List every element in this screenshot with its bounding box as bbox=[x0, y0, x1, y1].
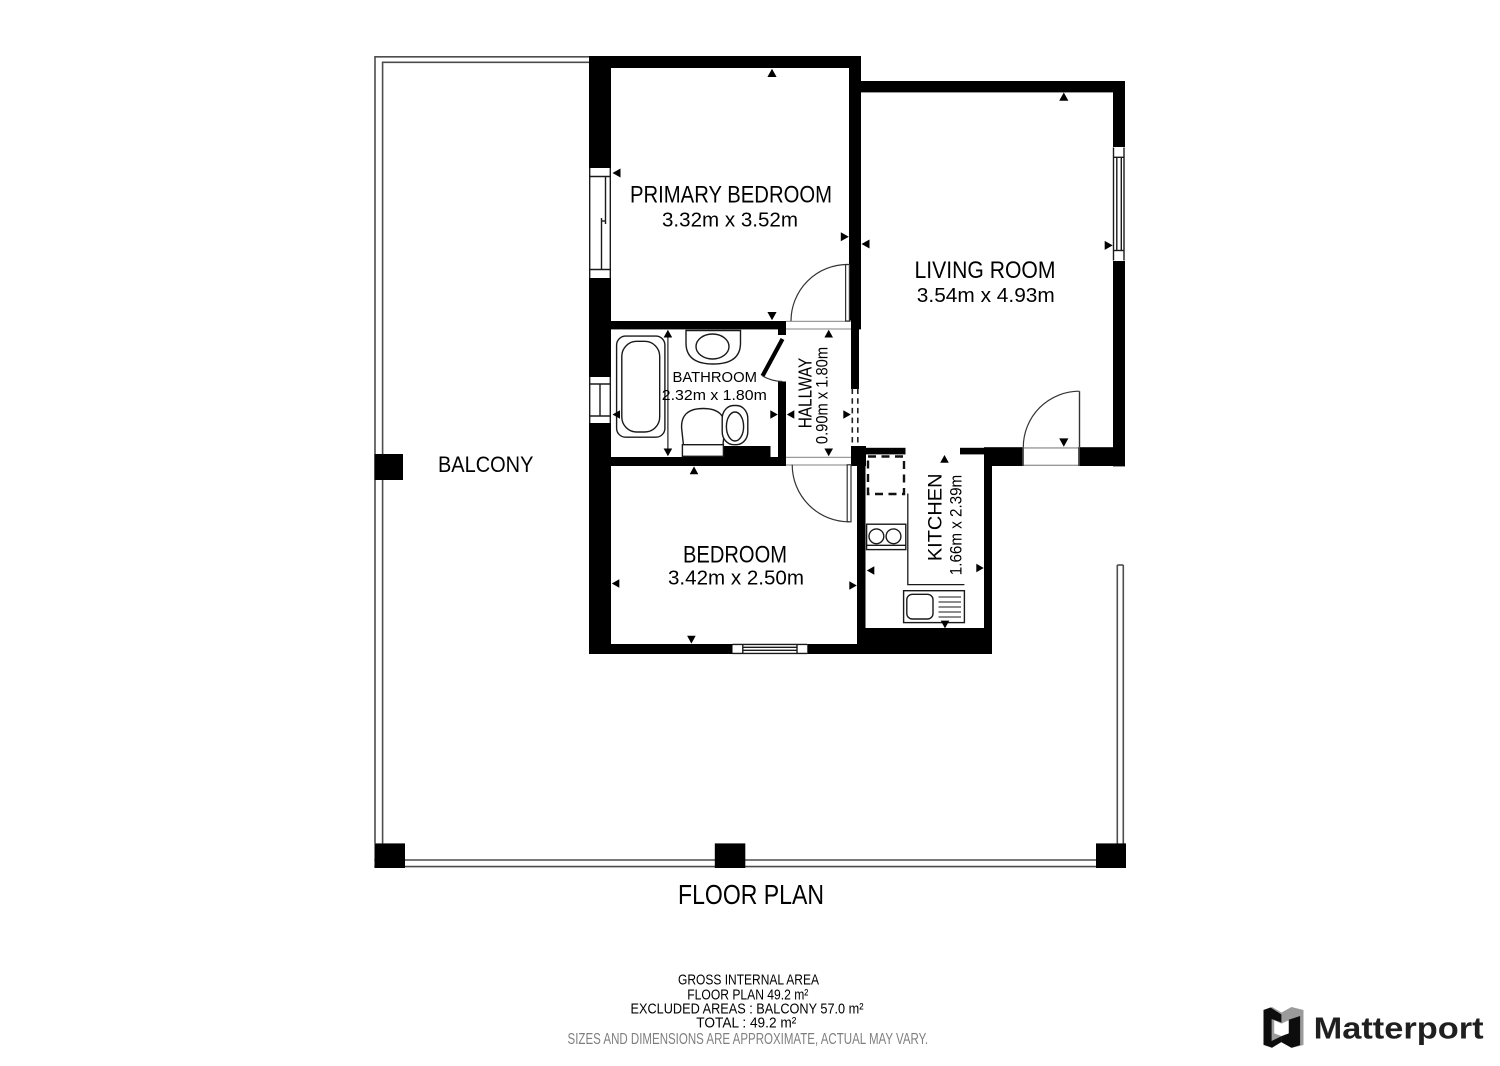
svg-text:BALCONY: BALCONY bbox=[438, 452, 534, 477]
svg-text:KITCHEN: KITCHEN bbox=[926, 473, 947, 561]
svg-text:LIVING ROOM: LIVING ROOM bbox=[915, 257, 1056, 284]
svg-text:BATHROOM: BATHROOM bbox=[672, 369, 757, 386]
svg-text:3.32m x 3.52m: 3.32m x 3.52m bbox=[662, 210, 798, 232]
svg-text:SIZES AND DIMENSIONS ARE APPRO: SIZES AND DIMENSIONS ARE APPROXIMATE, AC… bbox=[568, 1031, 929, 1048]
svg-text:BEDROOM: BEDROOM bbox=[683, 542, 787, 569]
svg-text:2.32m x 1.80m: 2.32m x 1.80m bbox=[662, 387, 767, 404]
svg-text:Matterport: Matterport bbox=[1314, 1011, 1484, 1046]
svg-text:HALLWAY: HALLWAY bbox=[796, 358, 816, 429]
svg-text:3.42m x 2.50m: 3.42m x 2.50m bbox=[668, 568, 804, 590]
svg-text:0.90m x 1.80m: 0.90m x 1.80m bbox=[814, 347, 832, 444]
svg-text:TOTAL : 49.2 m²: TOTAL : 49.2 m² bbox=[696, 1015, 796, 1032]
svg-text:PRIMARY BEDROOM: PRIMARY BEDROOM bbox=[630, 182, 832, 209]
svg-text:FLOOR PLAN: FLOOR PLAN bbox=[678, 879, 824, 910]
svg-text:3.54m x 4.93m: 3.54m x 4.93m bbox=[917, 285, 1055, 307]
svg-text:1.66m x 2.39m: 1.66m x 2.39m bbox=[948, 475, 966, 575]
